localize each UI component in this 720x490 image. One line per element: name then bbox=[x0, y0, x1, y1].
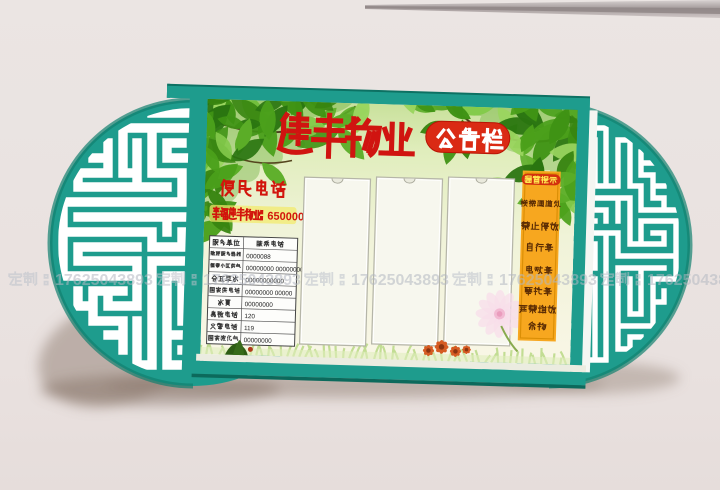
svg-text:17625043893: 17625043893 bbox=[647, 272, 720, 289]
svg-text:00000000 00000: 00000000 00000 bbox=[245, 289, 293, 297]
svg-text:120: 120 bbox=[244, 313, 255, 320]
svg-text:17625043893: 17625043893 bbox=[351, 272, 449, 289]
svg-text:00000000: 00000000 bbox=[244, 337, 273, 345]
svg-text:0000088: 0000088 bbox=[246, 253, 271, 261]
svg-text:17625043893: 17625043893 bbox=[499, 272, 597, 289]
svg-text:17625043893: 17625043893 bbox=[203, 272, 301, 289]
svg-text:119: 119 bbox=[244, 325, 255, 332]
svg-text:00000000: 00000000 bbox=[245, 301, 274, 309]
svg-text:650000: 650000 bbox=[267, 210, 304, 223]
svg-text:17625043893: 17625043893 bbox=[55, 272, 153, 289]
